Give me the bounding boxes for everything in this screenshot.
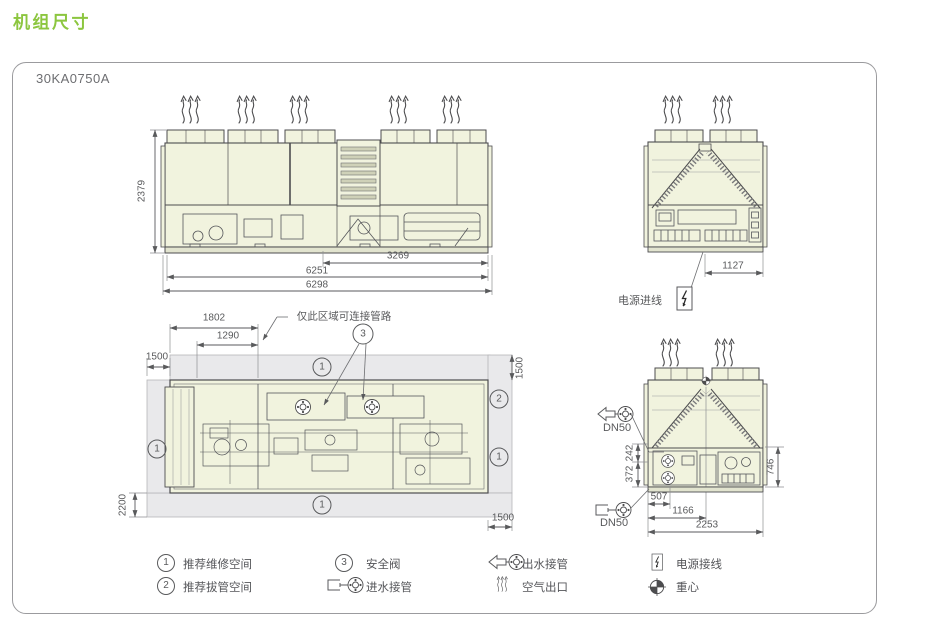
dim-plan-bottom-clearance: 2200: [118, 494, 129, 516]
dim-2253: 2253: [696, 520, 718, 531]
legend-circle-3-icon: 3: [335, 554, 353, 572]
callout-3-valve: 3: [353, 324, 374, 345]
dim-side-top-width: 1127: [722, 261, 744, 272]
legend-label-tube-pull-space: 推荐拔管空间: [183, 579, 252, 595]
dim-front-inner-width: 3269: [387, 251, 409, 262]
callout-1-left: 1: [148, 440, 167, 459]
page: { "title": "机组尺寸", "model": "30KA0750A",…: [0, 0, 930, 630]
dim-front-mid-width: 6251: [306, 266, 328, 277]
callout-1-bottom: 1: [313, 496, 332, 515]
drawing-panel: [12, 62, 877, 614]
model-number: 30KA0750A: [36, 71, 110, 86]
dim-plan-top-clearance: 1500: [515, 357, 526, 379]
callout-1-top: 1: [313, 358, 332, 377]
power-inlet-label: 电源进线: [618, 292, 662, 308]
dim-507: 507: [651, 492, 668, 503]
legend-label-power-wiring: 电源接线: [676, 556, 722, 572]
legend-label-water-outlet: 出水接管: [522, 556, 568, 572]
piping-region-note: 仅此区域可连接管路: [297, 309, 392, 324]
dim-plan-left-clearance: 1500: [146, 352, 168, 363]
legend-label-gravity-center: 重心: [676, 579, 699, 595]
inlet-dn-label: DN50: [600, 517, 628, 529]
page-title: 机组尺寸: [13, 8, 91, 33]
legend-label-safety-valve: 安全阀: [366, 556, 401, 572]
legend-label-water-inlet: 进水接管: [366, 579, 412, 595]
callout-2-right: 2: [490, 390, 509, 409]
dim-plan-right-clearance: 1500: [492, 513, 514, 524]
dim-plan-1802: 1802: [203, 313, 225, 324]
dim-1166: 1166: [672, 506, 694, 517]
dim-front-total-width: 6298: [306, 280, 328, 291]
dim-372: 372: [625, 466, 636, 483]
legend-circle-2-icon: 2: [157, 577, 175, 595]
outlet-dn-label: DN50: [603, 422, 631, 434]
legend-circle-1-icon: 1: [157, 554, 175, 572]
legend-label-maintenance-space: 推荐维修空间: [183, 556, 252, 572]
dim-plan-1290: 1290: [217, 331, 239, 342]
legend-label-air-outlet: 空气出口: [522, 579, 568, 595]
dim-242: 242: [625, 445, 636, 462]
dim-746: 746: [766, 459, 777, 476]
dim-front-height: 2379: [137, 180, 148, 202]
callout-1-right: 1: [490, 448, 509, 467]
